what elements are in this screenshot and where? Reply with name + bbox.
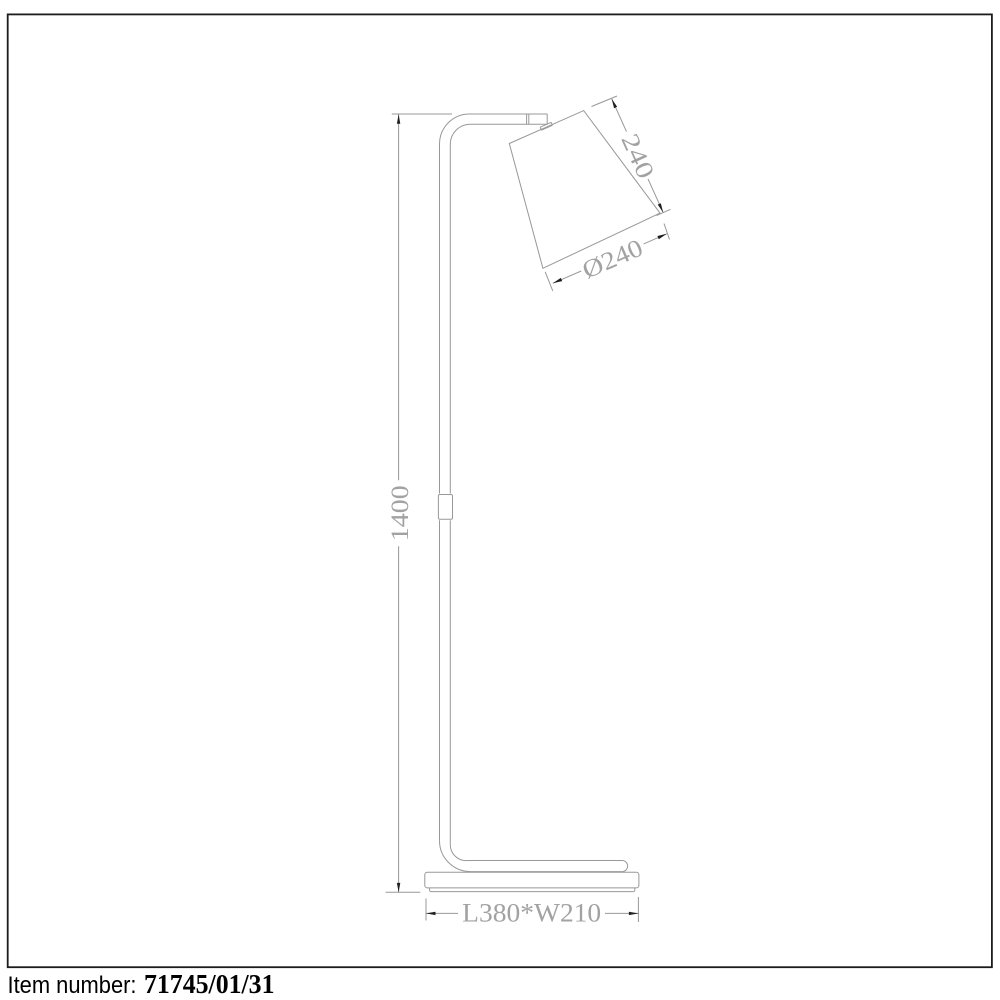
svg-text:Item number:: Item number:	[8, 972, 137, 999]
svg-text:1400: 1400	[387, 485, 414, 541]
svg-text:L380*W210: L380*W210	[462, 899, 601, 928]
svg-text:71745/01/31: 71745/01/31	[144, 969, 275, 999]
